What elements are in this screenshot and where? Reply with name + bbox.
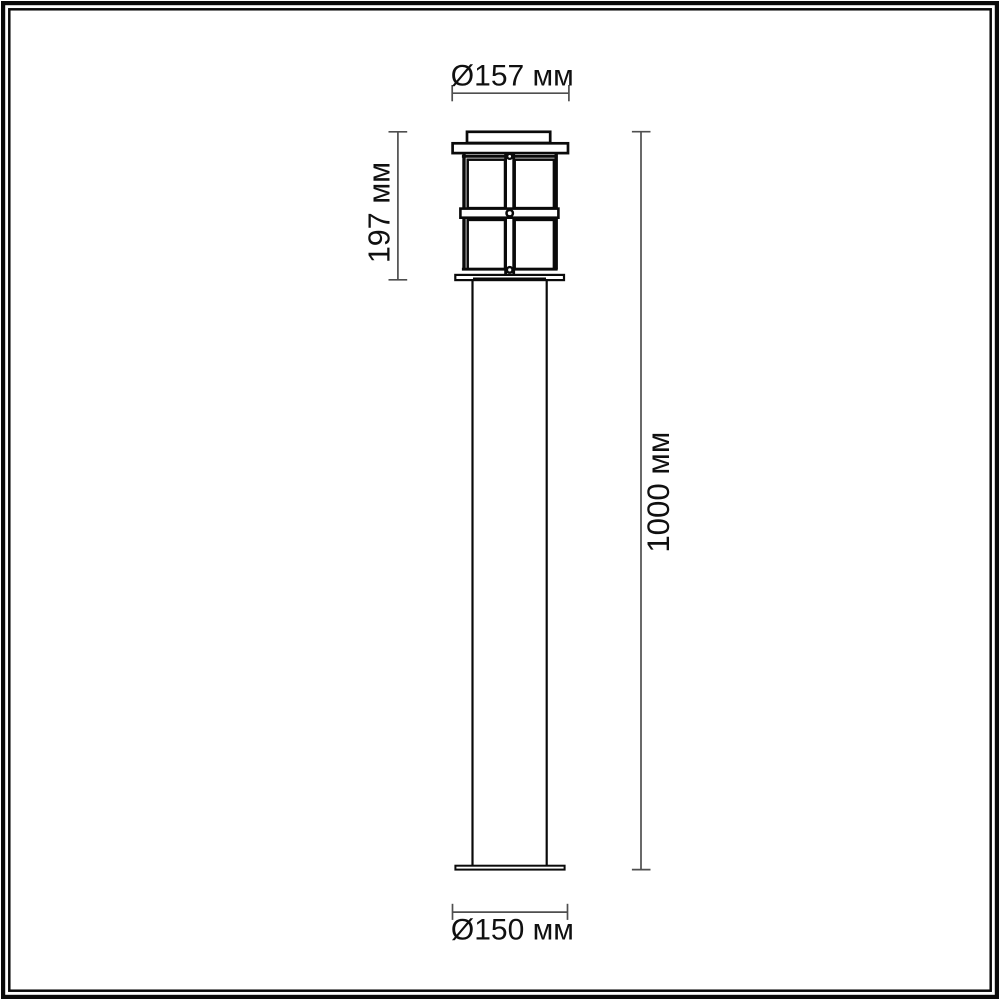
svg-text:Ø150 мм: Ø150 мм <box>451 914 574 947</box>
svg-text:1000 мм: 1000 мм <box>641 432 676 553</box>
svg-text:197 мм: 197 мм <box>363 162 397 263</box>
svg-text:Ø157 мм: Ø157 мм <box>451 59 574 92</box>
